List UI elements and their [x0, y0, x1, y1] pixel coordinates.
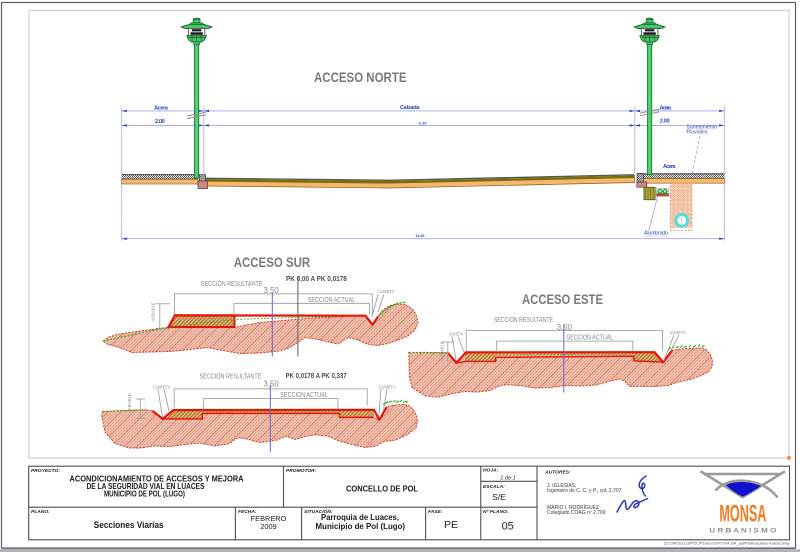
svg-text:ACCESO NORTE: ACCESO NORTE	[314, 70, 407, 85]
svg-text:MUNICIPIO DE POL (LUGO): MUNICIPIO DE POL (LUGO)	[104, 489, 185, 498]
svg-text:6.30: 6.30	[419, 121, 427, 125]
svg-text:2009: 2009	[260, 522, 276, 531]
svg-text:PLANO:: PLANO:	[31, 509, 50, 515]
svg-text:PK 0,00 A PK 0,0178: PK 0,00 A PK 0,0178	[286, 276, 347, 283]
svg-text:Municipio de Pol (Lugo): Municipio de Pol (Lugo)	[316, 522, 406, 531]
svg-text:11.30: 11.30	[416, 234, 425, 238]
svg-text:AUTORES:: AUTORES:	[544, 469, 571, 475]
svg-text:Nº PLANO:: Nº PLANO:	[483, 509, 509, 515]
svg-text:SECCION ACTUAL: SECCION ACTUAL	[567, 335, 614, 342]
svg-text:ACCESO SUR: ACCESO SUR	[234, 255, 311, 270]
svg-text:Secciones Viarias: Secciones Viarias	[94, 520, 164, 530]
svg-text:CUNETA: CUNETA	[379, 384, 397, 389]
svg-text:Alumbrado: Alumbrado	[644, 230, 668, 236]
svg-text:Colegiado COAG nº 2.769: Colegiado COAG nº 2.769	[547, 510, 606, 516]
svg-text:U R B A N I S M O: U R B A N I S M O	[709, 528, 776, 535]
svg-text:Parroquia de Luaces,: Parroquia de Luaces,	[321, 513, 399, 522]
svg-text:CUNETA: CUNETA	[377, 289, 395, 294]
svg-text:Ingeniero de C. C. y P., col.: Ingeniero de C. C. y P., col. 2.707	[547, 488, 622, 494]
svg-text:S/E: S/E	[492, 492, 506, 502]
svg-text:Calzada: Calzada	[400, 105, 420, 111]
svg-text:3.50: 3.50	[557, 323, 573, 332]
svg-text:2.00: 2.00	[660, 118, 670, 124]
svg-text:3.50: 3.50	[264, 286, 280, 295]
svg-text:Acera: Acera	[663, 164, 677, 170]
svg-text:Acera: Acera	[660, 106, 672, 112]
svg-text:SECCION RESULTANTE: SECCION RESULTANTE	[200, 373, 262, 380]
svg-text:SECCION ACTUAL: SECCION ACTUAL	[280, 392, 328, 399]
svg-text:05: 05	[502, 521, 514, 533]
svg-text:Pluviales: Pluviales	[687, 130, 709, 136]
svg-text:MONSA: MONSA	[719, 500, 766, 527]
svg-text:FASE:: FASE:	[428, 509, 443, 515]
svg-text:Z:CONCELLO/POL/P1vEd.02/P1v04.: Z:CONCELLO/POL/P1vEd.02/P1v04.UR_pol/Pla…	[664, 541, 790, 546]
svg-text:HOJA:: HOJA:	[483, 468, 499, 474]
svg-text:SECCION RESULTANTE: SECCION RESULTANTE	[494, 317, 554, 324]
svg-text:3.50: 3.50	[264, 379, 280, 388]
svg-text:SECCION ACTUAL: SECCION ACTUAL	[308, 297, 356, 304]
svg-text:VARIABLE: VARIABLE	[127, 394, 132, 413]
svg-text:CUNETA: CUNETA	[670, 330, 686, 335]
svg-text:VARIABLE: VARIABLE	[151, 303, 156, 322]
svg-text:CONCELLO DE POL: CONCELLO DE POL	[346, 484, 418, 494]
svg-text:ESCALA:: ESCALA:	[483, 484, 505, 490]
svg-text:ACCESO ESTE: ACCESO ESTE	[522, 292, 603, 307]
svg-text:VARIABLE: VARIABLE	[440, 342, 445, 361]
svg-text:PROYECTO:: PROYECTO:	[31, 468, 60, 474]
svg-text:PE: PE	[444, 519, 458, 531]
svg-text:SECCION RESULTANTE: SECCION RESULTANTE	[201, 281, 263, 288]
svg-text:CUNETA: CUNETA	[153, 384, 171, 389]
svg-text:Acera: Acera	[154, 106, 169, 112]
svg-text:2.00: 2.00	[155, 119, 165, 125]
svg-text:1 de 1: 1 de 1	[500, 476, 516, 482]
svg-text:PK 0,0178 A PK 0,337: PK 0,0178 A PK 0,337	[286, 373, 347, 380]
svg-text:PROMOTOR:: PROMOTOR:	[286, 468, 317, 474]
svg-text:CUNETA: CUNETA	[449, 332, 464, 337]
